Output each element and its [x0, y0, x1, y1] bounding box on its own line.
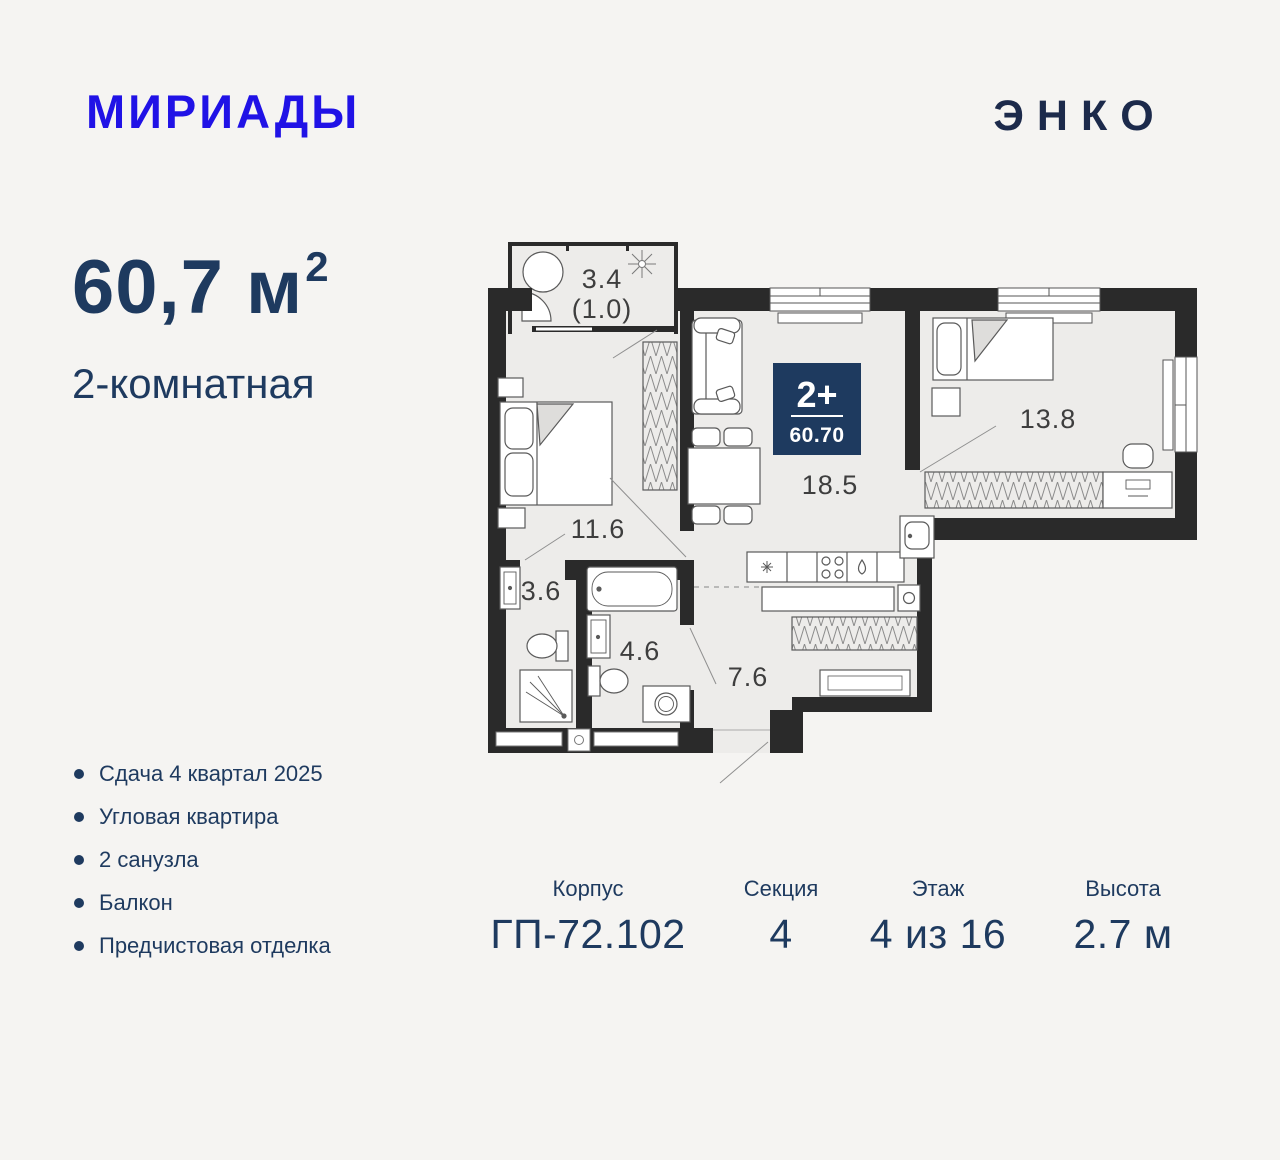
- detail-value: ГП-72.102: [478, 911, 698, 958]
- flat-card: МИРИАДЫ ЭНКО 60,7 м2 2-комнатная Сдача 4…: [0, 0, 1280, 1160]
- detail-korpus: Корпус ГП-72.102: [478, 876, 698, 958]
- toilet-tank: [556, 631, 568, 661]
- bedroom2-area-label: 13.8: [1020, 404, 1077, 434]
- toilet2-tank: [588, 666, 600, 696]
- feature-text: Угловая квартира: [99, 804, 278, 830]
- detail-value: 2.7 м: [1038, 911, 1208, 958]
- bathroom2-area-label: 4.6: [620, 636, 661, 666]
- desk-chair-icon: [1123, 444, 1153, 468]
- feature-item: Угловая квартира: [74, 795, 331, 838]
- feature-text: 2 санузла: [99, 847, 199, 873]
- wardrobe2-icon: [925, 472, 1103, 508]
- bullet-icon: [74, 812, 84, 822]
- bathroom1-area-label: 3.6: [521, 576, 562, 606]
- living-area-label: 18.5: [802, 470, 859, 500]
- balcony-table-icon: [523, 252, 563, 292]
- bedroom1-area-label: 11.6: [571, 514, 626, 544]
- balcony-reduced-area-label: (1.0): [572, 294, 633, 324]
- detail-sekcia: Секция 4: [706, 876, 856, 958]
- plant-icon: [628, 250, 656, 278]
- detail-value: 4 из 16: [858, 911, 1018, 958]
- toilet2-icon: [600, 669, 628, 693]
- area-superscript: 2: [305, 243, 329, 290]
- enko-logo: ЭНКО: [950, 92, 1210, 141]
- flat-badge: 2+ 60.70: [773, 363, 861, 455]
- detail-etazh: Этаж 4 из 16: [858, 876, 1018, 958]
- feature-item: 2 санузла: [74, 838, 331, 881]
- detail-label: Высота: [1038, 876, 1208, 902]
- detail-value: 4: [706, 911, 856, 958]
- badge-rooms: 2+: [796, 374, 837, 415]
- detail-label: Корпус: [478, 876, 698, 902]
- toilet-icon: [527, 634, 557, 658]
- detail-vysota: Высота 2.7 м: [1038, 876, 1208, 958]
- bullet-icon: [74, 855, 84, 865]
- desk-icon: [1103, 472, 1172, 508]
- detail-label: Этаж: [858, 876, 1018, 902]
- hall-area-label: 7.6: [728, 662, 769, 692]
- flat-type: 2-комнатная: [72, 360, 315, 408]
- miriady-logo: МИРИАДЫ: [86, 84, 360, 139]
- floor-plan-svg: 3.4 (1.0) 11.6 3.6 4.6 7.6 18.5 13.8 2+ …: [480, 230, 1220, 800]
- washing-machine-icon: [643, 686, 690, 722]
- flat-details: Корпус ГП-72.102 Секция 4 Этаж 4 из 16 В…: [0, 876, 1280, 966]
- balcony-area-label: 3.4: [582, 264, 623, 294]
- feature-text: Сдача 4 квартал 2025: [99, 761, 323, 787]
- badge-area: 60.70: [789, 424, 844, 447]
- flat-area-title: 60,7 м2: [72, 244, 328, 331]
- area-value: 60,7 м: [72, 245, 303, 330]
- bullet-icon: [74, 769, 84, 779]
- balcony-window: [536, 328, 592, 331]
- dining-table-icon: [688, 448, 760, 504]
- floor-plan: 3.4 (1.0) 11.6 3.6 4.6 7.6 18.5 13.8 2+ …: [480, 230, 1220, 800]
- wardrobe-icon: [643, 342, 677, 490]
- hall-wardrobe-icon: [792, 617, 917, 650]
- feature-item: Сдача 4 квартал 2025: [74, 752, 331, 795]
- detail-label: Секция: [706, 876, 856, 902]
